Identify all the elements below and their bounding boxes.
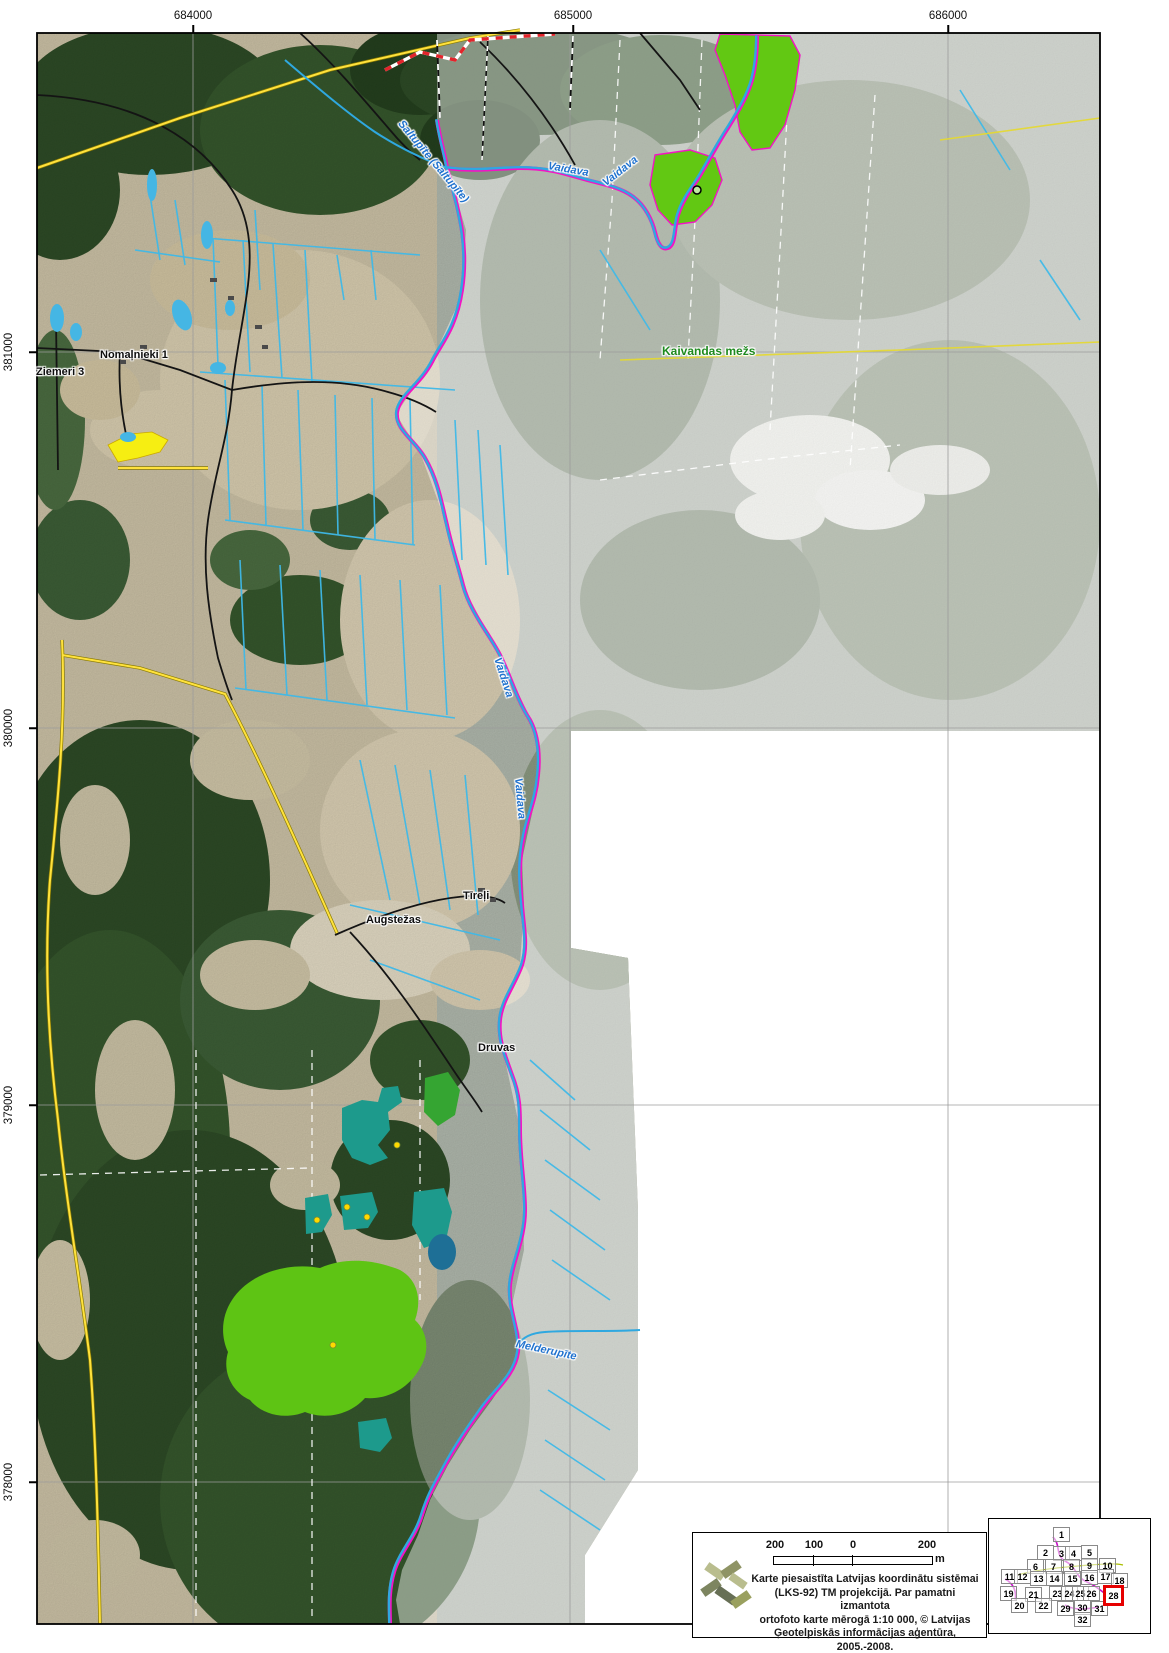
scale-bar-label: 100: [805, 1539, 823, 1551]
index-map-cell: 15: [1064, 1571, 1081, 1586]
top-axis-tick: [572, 25, 574, 33]
map-sheet: 684000685000686000 381000380000379000378…: [0, 0, 1169, 1653]
attribution-line: (LKS-92) TM projekcijā. Par pamatni izma…: [751, 1587, 979, 1614]
top-axis-label: 685000: [554, 10, 592, 22]
agency-logo-icon: [701, 1565, 753, 1613]
index-map-cell: 20: [1011, 1598, 1028, 1613]
left-axis-label: 381000: [3, 333, 15, 371]
map-label: Augstežas: [366, 914, 421, 926]
index-map-cell: 1: [1053, 1527, 1070, 1542]
map-label: Tīreļi: [463, 890, 489, 902]
left-axis-tick: [29, 1481, 37, 1483]
index-map-cell: 29: [1057, 1601, 1074, 1616]
attribution-text: Karte piesaistīta Latvijas koordinātu si…: [751, 1573, 979, 1653]
index-map-cell: 32: [1074, 1612, 1091, 1627]
top-axis-label: 686000: [929, 10, 967, 22]
index-map-cell: 16: [1081, 1570, 1098, 1585]
map-label: Ziemeri 3: [36, 366, 84, 378]
scale-bar: [773, 1556, 933, 1565]
index-map-cell: 22: [1035, 1598, 1052, 1613]
attribution-line: ortofoto karte mērogā 1:10 000, © Latvij…: [751, 1614, 979, 1628]
left-axis-tick: [29, 351, 37, 353]
index-map-cell: 12: [1014, 1569, 1031, 1584]
scale-bar-label: 0: [850, 1539, 856, 1551]
top-axis-tick: [192, 25, 194, 33]
index-map-cell: 28: [1103, 1585, 1124, 1606]
left-axis-tick: [29, 727, 37, 729]
legend-box: 2001000200 m Karte piesaistīta Latvijas …: [692, 1532, 987, 1638]
attribution-line: Karte piesaistīta Latvijas koordinātu si…: [751, 1573, 979, 1587]
top-axis-tick: [947, 25, 949, 33]
left-axis-label: 378000: [3, 1463, 15, 1501]
map-label: Kaivandas mežs: [662, 344, 755, 358]
map-label: Druvas: [478, 1042, 515, 1054]
attribution-line: Ģeotelpiskās informācijas aģentūra, 2005…: [751, 1627, 979, 1653]
index-map-cell: 13: [1030, 1571, 1047, 1586]
index-map-cell: 26: [1083, 1586, 1100, 1601]
scale-bar-label: 200: [766, 1539, 784, 1551]
left-axis-label: 380000: [3, 709, 15, 747]
scale-bar-label: 200: [918, 1539, 936, 1551]
map-label: Nomaļnieki 1: [100, 349, 168, 361]
top-axis-label: 684000: [174, 10, 212, 22]
map-canvas: [0, 0, 1169, 1653]
scale-bar-unit: m: [935, 1553, 945, 1565]
left-axis-label: 379000: [3, 1086, 15, 1124]
index-map-cell: 2: [1037, 1545, 1054, 1560]
left-axis-tick: [29, 1104, 37, 1106]
index-map-cell: 14: [1046, 1571, 1063, 1586]
sheet-index-map: 1234567891011121314151617181921232425262…: [988, 1518, 1151, 1634]
